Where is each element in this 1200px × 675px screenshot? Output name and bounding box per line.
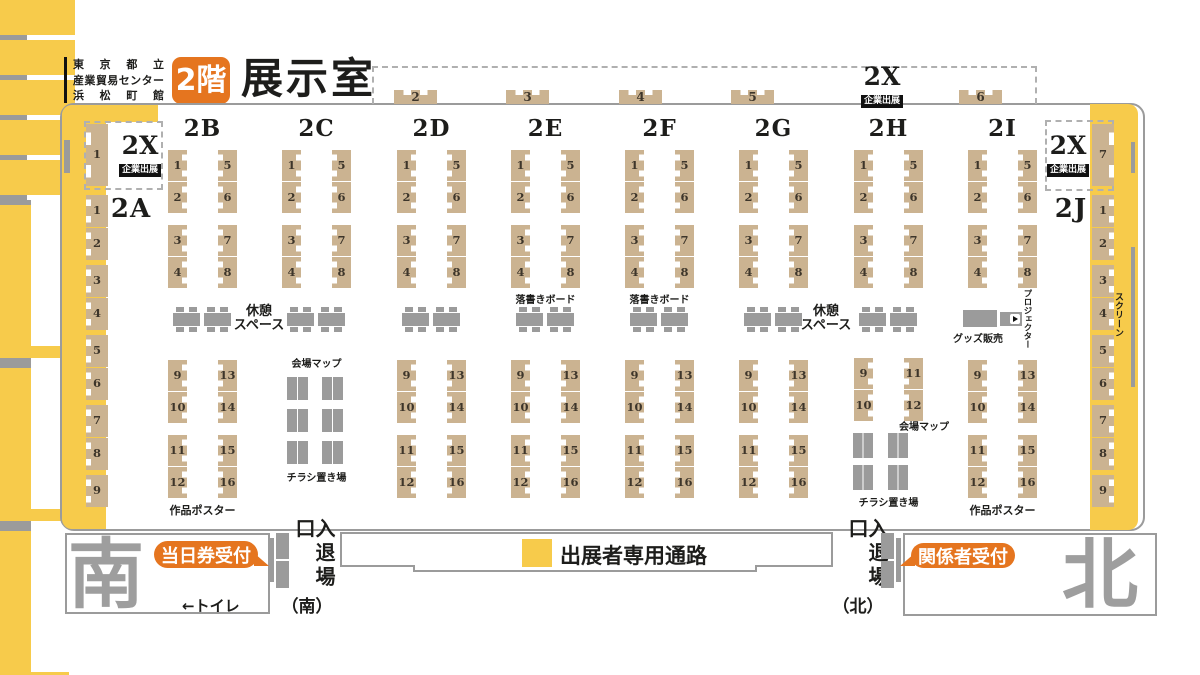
booth-opening [753,182,758,213]
corridor-cross [0,346,69,358]
booth-opening [868,182,873,213]
ticket-reception-bubble: 当日券受付 [154,541,258,568]
booth-number: 2 [287,192,295,204]
booth-opening [332,257,337,288]
booth-opening [982,392,987,423]
booth-2e-3: 3 [511,225,530,256]
booth-opening [218,467,223,498]
booth-opening [86,195,91,227]
booth-opening [86,438,91,470]
toilet-label: ←トイレ [182,595,240,616]
booth-number: 9 [173,370,181,382]
booth-2e-9: 9 [511,360,530,391]
booth-opening [675,182,680,213]
booth-2h-4: 4 [854,257,873,288]
booth-opening [561,182,566,213]
door-marker-left [64,140,70,173]
booth-opening [675,392,680,423]
rest-table [775,307,802,332]
graffiti-board-label: 落書きボード [615,291,704,306]
booth-2g-5: 5 [789,150,808,181]
rest-table [433,307,460,332]
gate-south-label: 入退場口 [294,518,334,598]
booth-number: 4 [93,308,101,320]
rest-table [204,307,231,332]
booth-2e-12: 12 [511,467,530,498]
booth-number: 8 [794,267,802,279]
section-label-2h: 2H [844,115,933,142]
booth-2d-7: 7 [447,225,466,256]
booth-2e-15: 15 [561,435,580,466]
booth-number: 4 [516,267,524,279]
booth-number: 5 [909,160,917,172]
booth-opening [789,360,794,391]
booth-opening [525,435,530,466]
booth-2h-7: 7 [904,225,923,256]
booth-2d-10: 10 [397,392,416,423]
booth-number: 4 [859,267,867,279]
flyer-area-label: チラシ置き場 [844,494,933,509]
booth-2g-10: 10 [739,392,758,423]
booth-opening [296,225,301,256]
rest-table [547,307,574,332]
booth-2i-3: 3 [968,225,987,256]
booth-2x-5: 5 [731,90,774,104]
gate-south-suffix: （南） [277,592,337,617]
booth-opening [447,467,452,498]
booth-opening [411,392,416,423]
bubble-tail [900,553,915,566]
booth-opening [411,360,416,391]
rest-table [661,307,688,332]
booth-opening [639,182,644,213]
legend-swatch [522,539,552,567]
booth-2x-1: 1 [86,124,108,186]
booth-number: 5 [452,160,460,172]
booth-2i-14: 14 [1018,392,1037,423]
top-2x-label: 2X 企業出展 [851,64,913,108]
booth-opening [86,298,91,330]
booth-2x-6: 6 [959,90,1002,104]
booth-2d-15: 15 [447,435,466,466]
booth-2g-1: 1 [739,150,758,181]
booth-number: 5 [1099,345,1107,357]
booth-opening [868,358,873,389]
booth-number: 4 [973,267,981,279]
booth-opening [525,392,530,423]
booth-2i-13: 13 [1018,360,1037,391]
booth-number: 5 [337,160,345,172]
booth-2h-11: 11 [904,358,923,389]
booth-opening [86,228,91,260]
booth-2d-3: 3 [397,225,416,256]
booth-number: 5 [566,160,574,172]
booth-opening [218,182,223,213]
reception-desk-south [276,533,289,559]
booth-2e-5: 5 [561,150,580,181]
booth-opening [965,90,995,95]
rest-table [402,307,429,332]
booth-opening [525,150,530,181]
section-sublabel-2x: 企業出展 [119,164,161,177]
booth-number: 7 [1099,149,1107,161]
booth-number: 4 [402,267,410,279]
booth-opening [182,392,187,423]
booth-2x-2: 2 [394,90,437,104]
staff-reception-label: 関係者受付 [918,543,1008,569]
works-poster-label: 作品ポスター [958,502,1047,518]
reception-desk-south [276,561,289,588]
booth-2d-6: 6 [447,182,466,213]
booth-2h-3: 3 [854,225,873,256]
booth-2a-6: 6 [86,368,108,400]
booth-2j-3: 3 [1092,265,1114,297]
booth-2e-14: 14 [561,392,580,423]
rest-table [318,307,345,332]
section-label-2a: 2A [100,194,162,224]
booth-number: 9 [516,370,524,382]
booth-opening [753,150,758,181]
booth-opening [218,360,223,391]
booth-2e-7: 7 [561,225,580,256]
booth-opening [447,150,452,181]
flyer-rack [322,409,343,432]
booth-2e-16: 16 [561,467,580,498]
booth-number: 3 [859,235,867,247]
booth-opening [182,150,187,181]
booth-2d-2: 2 [397,182,416,213]
rest-table [173,307,200,332]
flyer-rack [888,433,908,458]
booth-opening [561,392,566,423]
booth-2d-16: 16 [447,467,466,498]
north-direction-label: 北 [1062,537,1138,613]
booth-2i-1: 1 [968,150,987,181]
booth-2i-9: 9 [968,360,987,391]
booth-2e-10: 10 [511,392,530,423]
booth-number: 4 [1099,308,1107,320]
booth-number: 2 [973,192,981,204]
ticket-reception-label: 当日券受付 [161,542,251,568]
booth-2c-3: 3 [282,225,301,256]
booth-opening [675,150,680,181]
booth-number: 7 [794,235,802,247]
booth-number: 8 [680,267,688,279]
booth-opening [296,150,301,181]
booth-number: 3 [173,235,181,247]
booth-opening [561,257,566,288]
booth-2i-5: 5 [1018,150,1037,181]
booth-2b-7: 7 [218,225,237,256]
booth-opening [561,435,566,466]
booth-opening [1109,438,1114,470]
booth-opening [411,150,416,181]
booth-opening [218,150,223,181]
booth-number: 1 [93,149,101,161]
booth-2g-14: 14 [789,392,808,423]
booth-2e-8: 8 [561,257,580,288]
booth-2b-1: 1 [168,150,187,181]
booth-number: 6 [93,378,101,390]
exhibitor-corridor-2b [0,368,31,509]
booth-number: 7 [1099,415,1107,427]
booth-2h-12: 12 [904,390,923,421]
booth-2b-4: 4 [168,257,187,288]
booth-opening [753,392,758,423]
booth-2d-4: 4 [397,257,416,288]
booth-2c-2: 2 [282,182,301,213]
booth-2f-3: 3 [625,225,644,256]
booth-opening [639,467,644,498]
booth-number: 9 [630,370,638,382]
booth-2f-2: 2 [625,182,644,213]
booth-2d-5: 5 [447,150,466,181]
section-label-2i: 2I [958,115,1047,142]
booth-number: 4 [287,267,295,279]
venue-name-line: 産業貿易センター [73,73,164,89]
booth-opening [789,225,794,256]
booth-number: 8 [566,267,574,279]
booth-2i-7: 7 [1018,225,1037,256]
booth-number: 2 [1099,238,1107,250]
booth-number: 4 [173,267,181,279]
booth-opening [789,392,794,423]
booth-2x-7: 7 [1092,124,1114,186]
booth-opening [525,257,530,288]
booth-opening [789,150,794,181]
booth-2f-16: 16 [675,467,694,498]
booth-stall-2x [0,0,75,35]
booth-2d-1: 1 [397,150,416,181]
booth-opening [675,435,680,466]
booth-number: 3 [973,235,981,247]
booth-2b-9: 9 [168,360,187,391]
booth-opening [1109,228,1114,260]
projector-lens [1010,314,1020,324]
booth-2g-4: 4 [739,257,758,288]
booth-2j-4: 4 [1092,298,1114,330]
booth-opening [86,124,91,186]
flyer-rack [853,433,873,458]
booth-number: 1 [287,160,295,172]
goods-label: グッズ販売 [953,330,1003,345]
booth-2d-8: 8 [447,257,466,288]
booth-number: 4 [744,267,752,279]
booth-opening [1018,467,1023,498]
booth-number: 8 [337,267,345,279]
booth-2i-15: 15 [1018,435,1037,466]
booth-number: 8 [223,267,231,279]
booth-opening [86,265,91,297]
booth-opening [675,257,680,288]
booth-opening [447,182,452,213]
venue-name-line: 東京都立 [73,57,164,73]
booth-opening [1018,182,1023,213]
booth-opening [86,368,91,400]
booth-number: 6 [1099,378,1107,390]
booth-2i-2: 2 [968,182,987,213]
floor-map: 東京都立 産業貿易センター 浜松町館 2階 展示室 スクリーン 2X 企業出展 … [0,0,1200,675]
booth-opening [639,435,644,466]
booth-opening [753,360,758,391]
booth-opening [904,358,909,389]
booth-opening [411,225,416,256]
booth-2j-2: 2 [1092,228,1114,260]
booth-number: 1 [973,160,981,172]
legend-label: 出展者専用通路 [560,540,707,570]
flyer-rack [322,377,343,400]
booth-opening [400,90,430,95]
booth-2j-7: 7 [1092,405,1114,437]
booth-number: 1 [402,160,410,172]
booth-2f-15: 15 [675,435,694,466]
booth-2b-16: 16 [218,467,237,498]
booth-opening [182,182,187,213]
booth-2d-9: 9 [397,360,416,391]
booth-number: 4 [630,267,638,279]
booth-opening [1109,124,1114,186]
booth-opening [525,225,530,256]
booth-opening [218,435,223,466]
booth-2b-3: 3 [168,225,187,256]
booth-opening [561,360,566,391]
flyer-rack [287,441,308,464]
booth-opening [753,467,758,498]
booth-2g-12: 12 [739,467,758,498]
top-2x-area [372,66,1037,104]
booth-number: 1 [630,160,638,172]
booth-number: 1 [1099,205,1107,217]
booth-opening [447,392,452,423]
booth-opening [753,435,758,466]
booth-opening [411,182,416,213]
booth-opening [411,257,416,288]
booth-2f-14: 14 [675,392,694,423]
booth-2f-5: 5 [675,150,694,181]
booth-2h-1: 1 [854,150,873,181]
booth-opening [332,150,337,181]
reception-desk-north [881,533,894,559]
booth-2b-6: 6 [218,182,237,213]
booth-opening [1109,368,1114,400]
booth-2b-2: 2 [168,182,187,213]
booth-2g-2: 2 [739,182,758,213]
rest-space-line: 休憩 [795,305,857,319]
booth-2b-12: 12 [168,467,187,498]
booth-number: 5 [680,160,688,172]
booth-opening [904,390,909,421]
staff-reception-bubble: 関係者受付 [911,543,1015,568]
booth-opening [639,392,644,423]
booth-2j-8: 8 [1092,438,1114,470]
booth-number: 6 [909,192,917,204]
booth-2j-5: 5 [1092,335,1114,367]
booth-2i-6: 6 [1018,182,1037,213]
booth-opening [675,225,680,256]
booth-number: 9 [402,370,410,382]
booth-number: 7 [337,235,345,247]
booth-opening [447,257,452,288]
booth-2i-16: 16 [1018,467,1037,498]
booth-opening [512,90,542,95]
booth-number: 8 [93,448,101,460]
section-sublabel-2x: 企業出展 [861,95,903,108]
booth-2e-13: 13 [561,360,580,391]
right-2x-label: 2X 企業出展 [1040,133,1096,177]
flyer-rack [322,441,343,464]
booth-number: 1 [859,160,867,172]
venue-map-label: 会場マップ [899,418,949,433]
page-title: 展示室 [241,56,376,102]
rest-table [744,307,771,332]
booth-opening [1018,150,1023,181]
booth-opening [1018,225,1023,256]
booth-number: 7 [909,235,917,247]
booth-2a-4: 4 [86,298,108,330]
booth-opening [904,225,909,256]
section-label-2x: 2X [1040,133,1096,159]
rest-table [890,307,917,332]
booth-2x-3: 3 [506,90,549,104]
booth-number: 3 [93,275,101,287]
booth-number: 7 [452,235,460,247]
booth-number: 6 [1023,192,1031,204]
corridor-cross [0,509,69,521]
booth-2g-13: 13 [789,360,808,391]
booth-2f-13: 13 [675,360,694,391]
booth-2f-7: 7 [675,225,694,256]
reception-desk-north [881,561,894,588]
booth-opening [789,435,794,466]
booth-2c-1: 1 [282,150,301,181]
flyer-rack [287,377,308,400]
rest-table [287,307,314,332]
booth-2f-9: 9 [625,360,644,391]
booth-number: 2 [630,192,638,204]
rest-table [630,307,657,332]
booth-number: 6 [794,192,802,204]
booth-opening [868,150,873,181]
booth-2g-15: 15 [789,435,808,466]
booth-opening [296,182,301,213]
header-rule [64,57,67,103]
booth-opening [86,335,91,367]
booth-opening [639,257,644,288]
booth-number: 2 [744,192,752,204]
venue-name: 東京都立 産業貿易センター 浜松町館 [73,57,164,104]
booth-opening [789,257,794,288]
booth-number: 1 [173,160,181,172]
booth-opening [982,225,987,256]
booth-opening [789,182,794,213]
booth-opening [182,360,187,391]
booth-2g-6: 6 [789,182,808,213]
booth-opening [1018,392,1023,423]
booth-number: 7 [93,415,101,427]
rest-space-line: 休憩 [228,305,290,319]
booth-2b-11: 11 [168,435,187,466]
booth-opening [675,360,680,391]
booth-number: 6 [223,192,231,204]
booth-2h-9: 9 [854,358,873,389]
booth-number: 5 [93,345,101,357]
booth-opening [982,435,987,466]
booth-opening [868,225,873,256]
booth-opening [525,182,530,213]
booth-2d-12: 12 [397,467,416,498]
rest-table [859,307,886,332]
booth-number: 3 [402,235,410,247]
